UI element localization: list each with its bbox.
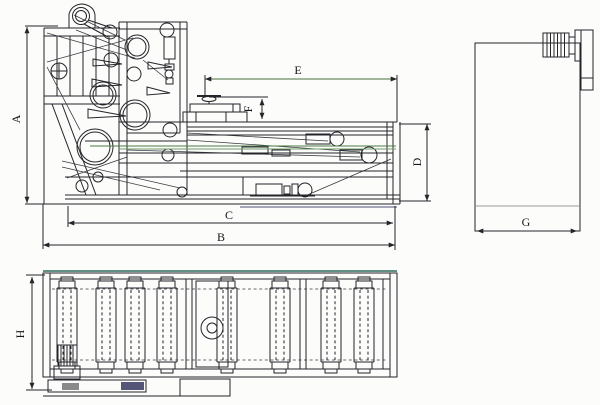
side-view-feed-valve <box>183 96 247 122</box>
dim-label-a: A <box>9 114 23 123</box>
three-view-technical-drawing: A E F D C B <box>0 0 600 405</box>
end-view-dimension-g: G <box>477 215 577 231</box>
drawing-canvas: A E F D C B <box>0 0 600 405</box>
dim-label-c: C <box>225 208 233 222</box>
dim-label-h: H <box>13 329 27 338</box>
plan-view-base <box>43 379 230 396</box>
plan-view-dimension-h: H <box>13 275 52 390</box>
end-view-motor <box>543 30 593 90</box>
plan-roller <box>157 277 177 373</box>
plan-roller <box>270 277 290 373</box>
side-view: A E F D C B <box>9 4 431 250</box>
plan-roller <box>96 277 116 373</box>
dim-label-b: B <box>217 230 225 244</box>
dim-label-e: E <box>294 63 301 77</box>
side-view-body-rails <box>65 122 397 204</box>
side-view-lifting-lug <box>69 4 112 37</box>
side-view-belt-lines <box>47 15 391 196</box>
end-view: G <box>475 30 593 231</box>
side-view-tensioner-cylinder <box>164 37 175 84</box>
plan-roller <box>217 277 237 373</box>
dim-label-d: D <box>410 157 424 166</box>
plan-roller <box>125 277 145 373</box>
plan-roller <box>354 277 374 373</box>
plan-roller <box>321 277 341 373</box>
plan-view: H <box>13 271 397 396</box>
end-view-body <box>475 43 580 231</box>
side-view-dimensions: A E F D C B <box>9 26 431 250</box>
dim-label-f: F <box>241 105 255 112</box>
dim-label-g: G <box>522 215 531 229</box>
